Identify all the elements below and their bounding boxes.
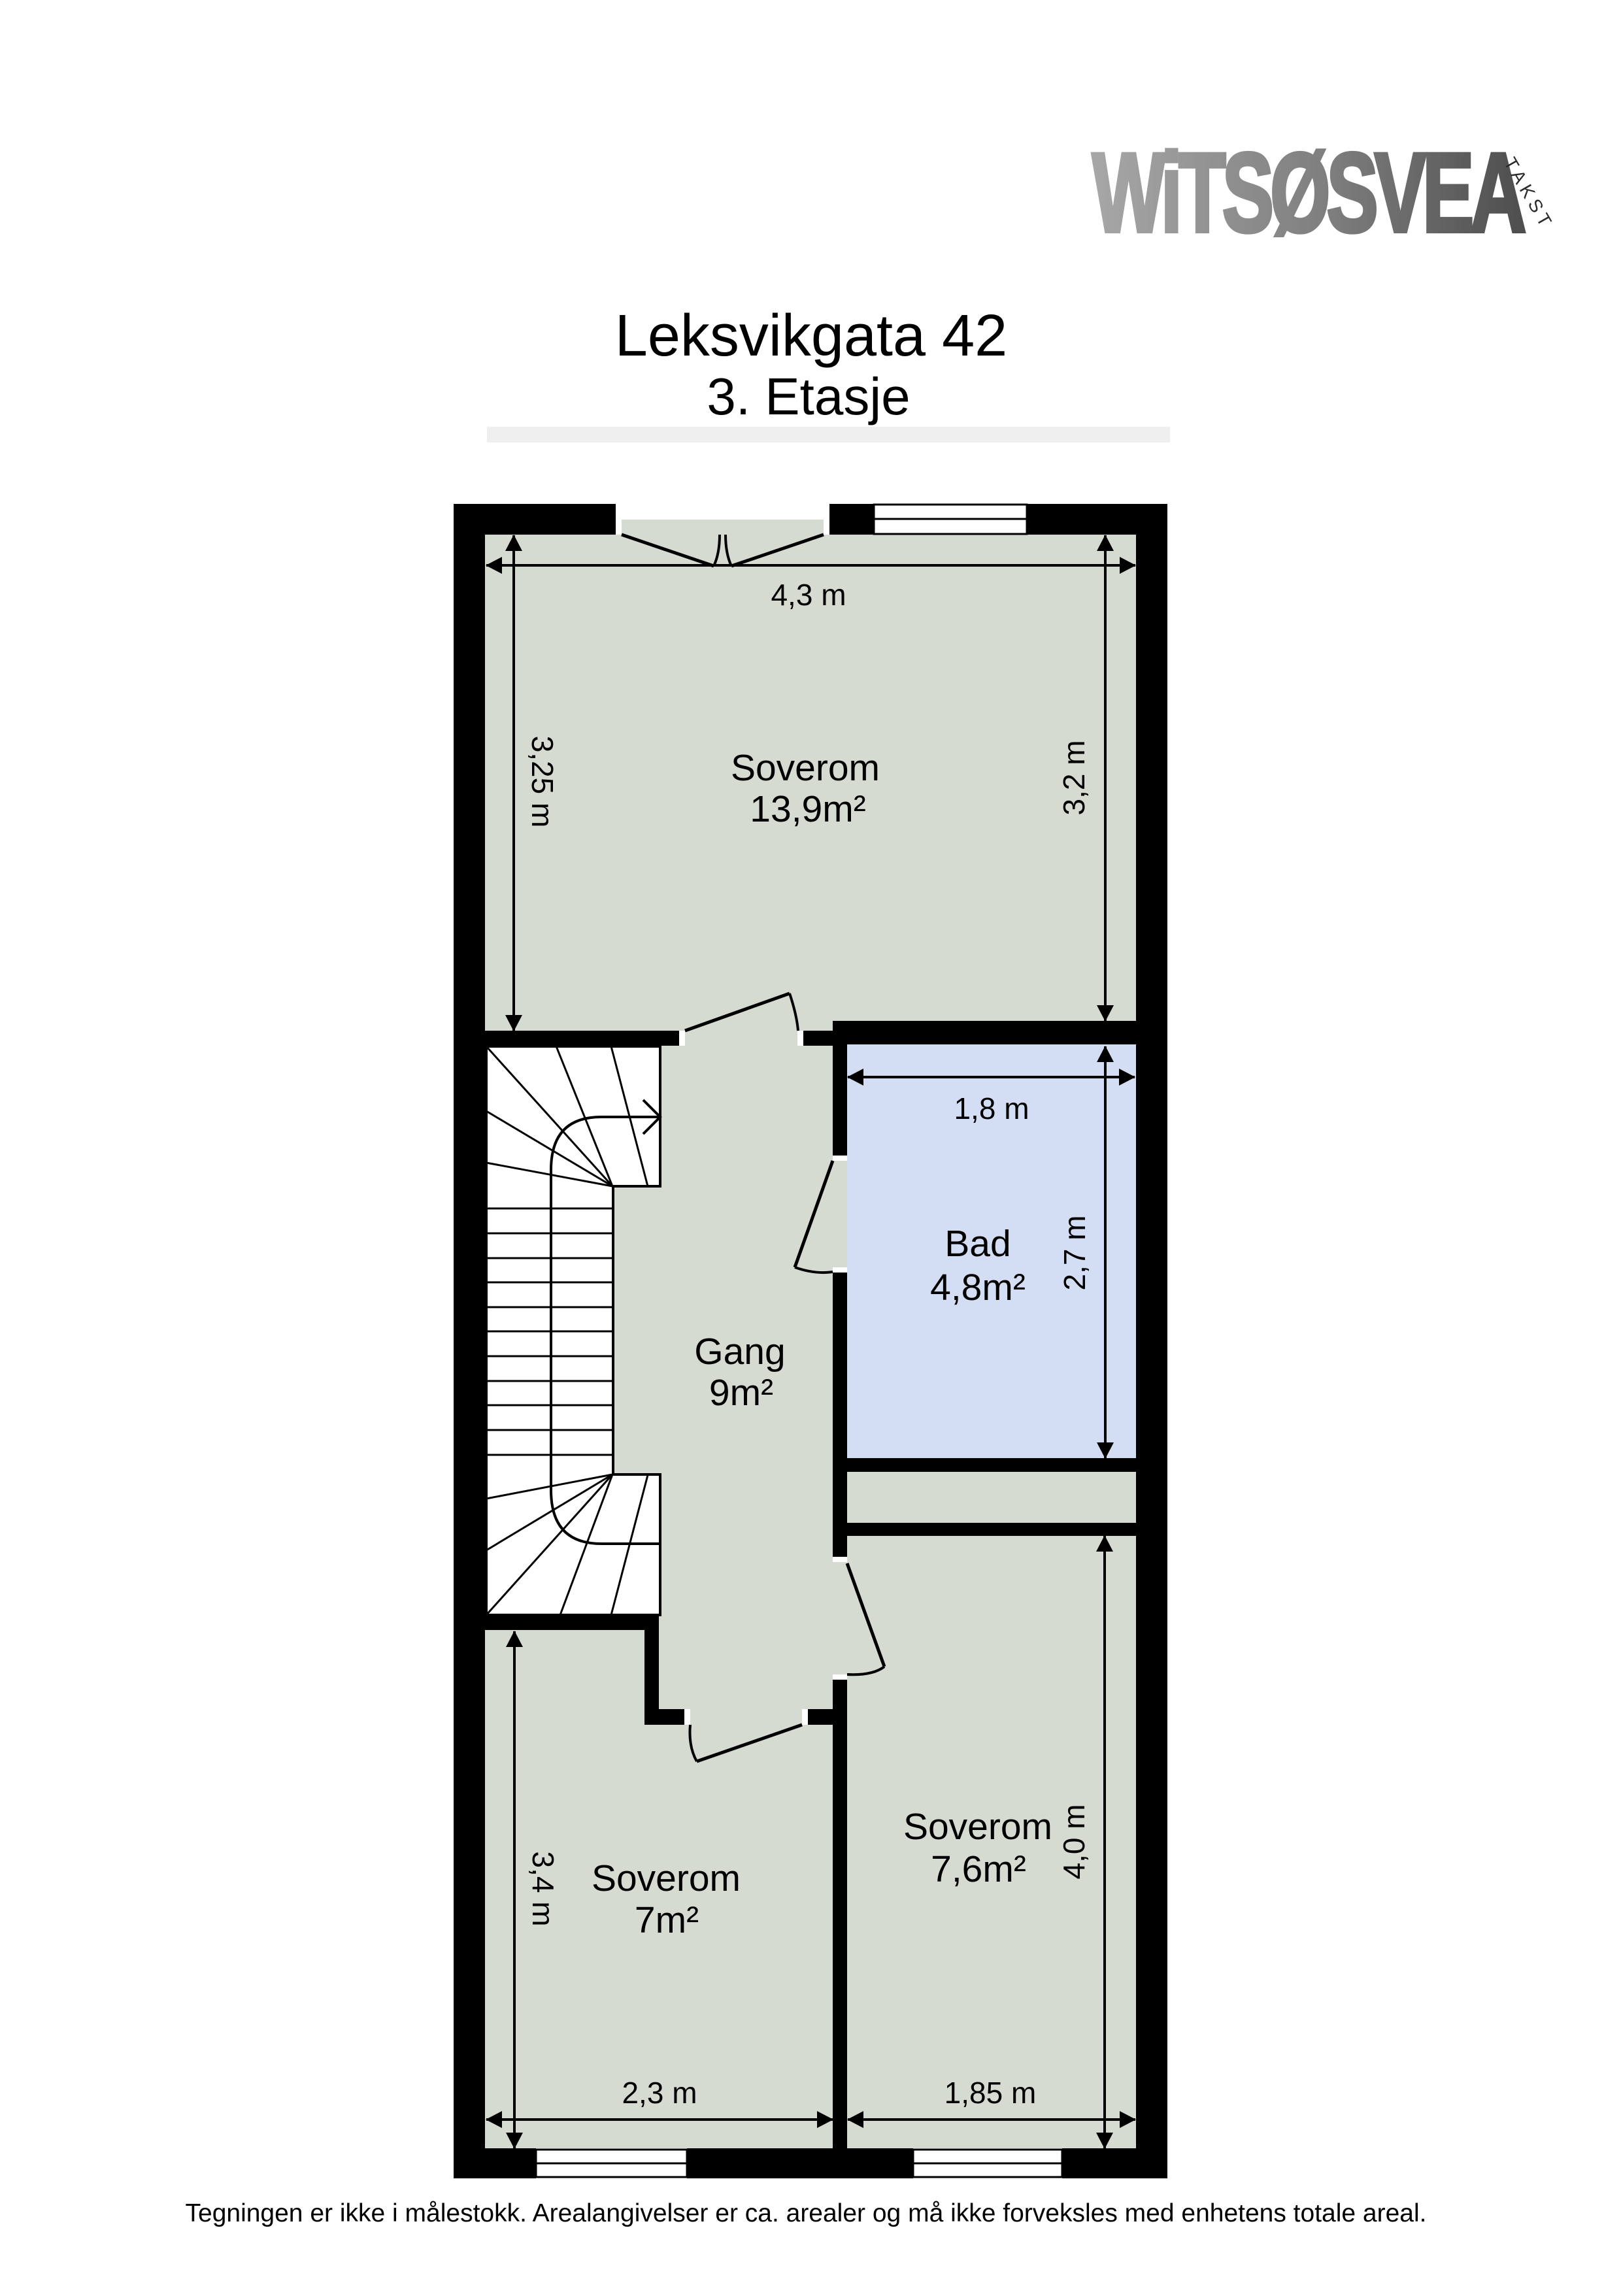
svg-text:Soverom: Soverom bbox=[731, 747, 880, 789]
svg-text:Bad: Bad bbox=[944, 1223, 1011, 1265]
svg-text:7m²: 7m² bbox=[635, 1899, 699, 1941]
svg-text:Tegningen er ikke i målestokk.: Tegningen er ikke i målestokk. Arealangi… bbox=[186, 2199, 1427, 2227]
svg-text:3,25 m: 3,25 m bbox=[526, 736, 560, 828]
svg-text:4,8m²: 4,8m² bbox=[930, 1267, 1026, 1308]
svg-text:3. Etasje: 3. Etasje bbox=[707, 367, 910, 425]
svg-text:Soverom: Soverom bbox=[903, 1806, 1052, 1848]
svg-text:2,7 m: 2,7 m bbox=[1058, 1215, 1092, 1290]
svg-text:Gang: Gang bbox=[694, 1331, 785, 1373]
svg-text:1,85 m: 1,85 m bbox=[944, 2076, 1037, 2110]
svg-text:3,2 m: 3,2 m bbox=[1057, 740, 1091, 815]
svg-text:4,0 m: 4,0 m bbox=[1057, 1804, 1091, 1879]
svg-text:1,8 m: 1,8 m bbox=[954, 1091, 1029, 1125]
svg-text:4,3 m: 4,3 m bbox=[771, 578, 846, 612]
svg-text:WiTSØSVEA: WiTSØSVEA bbox=[1092, 130, 1524, 256]
svg-text:2,3 m: 2,3 m bbox=[622, 2076, 697, 2110]
svg-text:Leksvikgata 42: Leksvikgata 42 bbox=[615, 303, 1007, 369]
svg-text:9m²: 9m² bbox=[709, 1372, 773, 1414]
svg-text:13,9m²: 13,9m² bbox=[750, 788, 865, 830]
svg-text:7,6m²: 7,6m² bbox=[931, 1848, 1026, 1890]
svg-text:Soverom: Soverom bbox=[592, 1857, 741, 1899]
svg-text:3,4 m: 3,4 m bbox=[526, 1851, 560, 1926]
